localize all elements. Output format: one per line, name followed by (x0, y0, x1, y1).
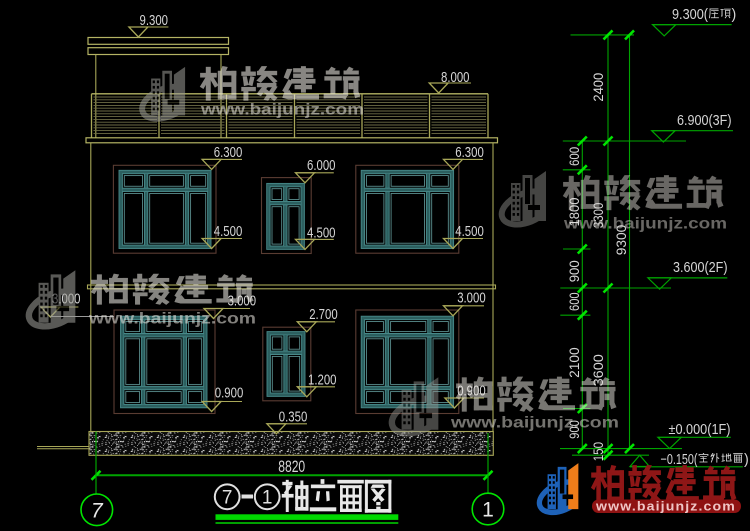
svg-text:www.baijunjz.com: www.baijunjz.com (200, 102, 364, 119)
svg-text:www.baijunjz.com: www.baijunjz.com (450, 415, 619, 432)
svg-text:3.000: 3.000 (457, 291, 486, 307)
svg-text:www.baijunjz.com: www.baijunjz.com (595, 500, 736, 514)
svg-text:600: 600 (567, 292, 582, 311)
svg-text:1: 1 (482, 499, 494, 522)
svg-text:900: 900 (567, 260, 582, 282)
svg-text:8820: 8820 (278, 457, 305, 476)
svg-text:0.900: 0.900 (215, 385, 244, 401)
svg-text:±0.000(1F): ±0.000(1F) (669, 422, 731, 438)
svg-text:3.600(2F): 3.600(2F) (673, 260, 728, 276)
svg-text:150: 150 (591, 442, 606, 461)
svg-text:0.350: 0.350 (279, 409, 308, 425)
svg-text:9.300(: 9.300( (672, 7, 708, 23)
svg-text:7: 7 (91, 500, 104, 523)
svg-text:4.500: 4.500 (214, 224, 243, 240)
svg-text:www.baijunjz.com: www.baijunjz.com (563, 216, 727, 233)
svg-text:2.700: 2.700 (309, 307, 338, 323)
svg-text:−0.150(: −0.150( (661, 452, 698, 468)
svg-text:2400: 2400 (591, 73, 606, 102)
svg-text:6.300: 6.300 (455, 145, 484, 161)
svg-text:1.200: 1.200 (308, 372, 337, 388)
svg-text:): ) (744, 452, 749, 468)
svg-text:8.000: 8.000 (441, 70, 470, 86)
svg-text:2100: 2100 (567, 347, 582, 378)
svg-text:6.300: 6.300 (214, 145, 243, 161)
svg-text:600: 600 (567, 147, 582, 166)
svg-text:6.900(3F): 6.900(3F) (677, 113, 732, 129)
svg-text:www.baijunjz.com: www.baijunjz.com (88, 311, 256, 328)
svg-text:1: 1 (262, 488, 273, 509)
svg-text:4.500: 4.500 (307, 225, 336, 241)
svg-text:4.500: 4.500 (455, 224, 484, 240)
svg-text:6.000: 6.000 (307, 158, 336, 174)
svg-text:7: 7 (222, 488, 233, 509)
svg-text:): ) (732, 7, 737, 23)
svg-text:9.300: 9.300 (140, 13, 169, 29)
